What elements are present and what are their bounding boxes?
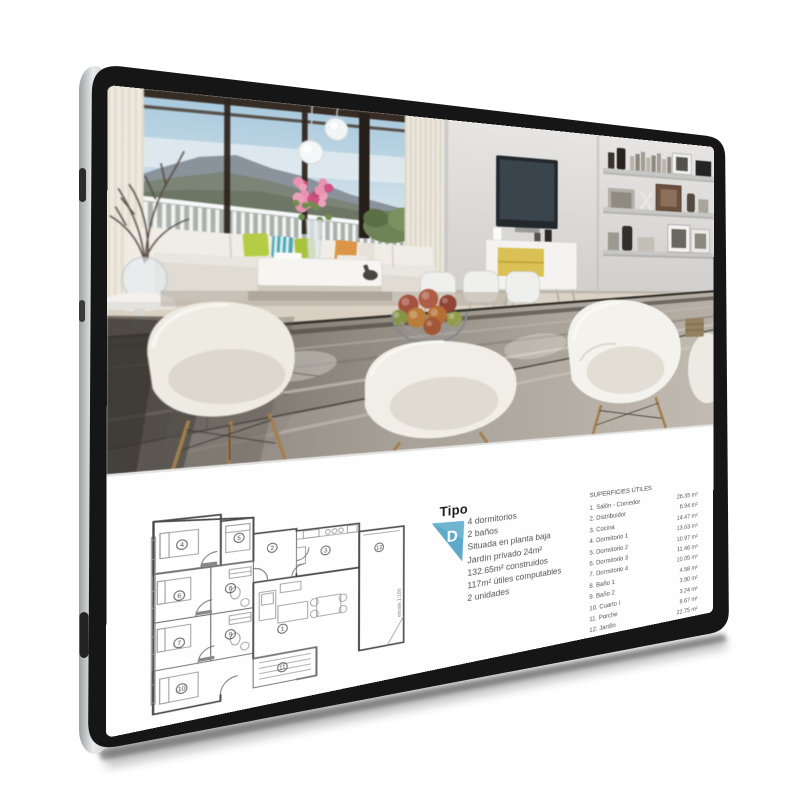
svg-text:12: 12	[376, 543, 382, 551]
svg-text:1: 1	[281, 625, 285, 633]
svg-text:5: 5	[237, 534, 241, 542]
svg-text:9: 9	[229, 630, 233, 638]
svg-text:D: D	[447, 527, 458, 545]
svg-text:11: 11	[279, 663, 286, 672]
svg-text:2: 2	[270, 544, 274, 552]
svg-text:4: 4	[180, 540, 184, 548]
svg-text:6: 6	[177, 591, 181, 599]
svg-text:3: 3	[324, 546, 327, 554]
svg-text:10: 10	[178, 684, 186, 693]
svg-text:8: 8	[229, 584, 233, 592]
svg-text:7: 7	[177, 639, 181, 647]
svg-text:escala 1:100: escala 1:100	[397, 588, 402, 618]
